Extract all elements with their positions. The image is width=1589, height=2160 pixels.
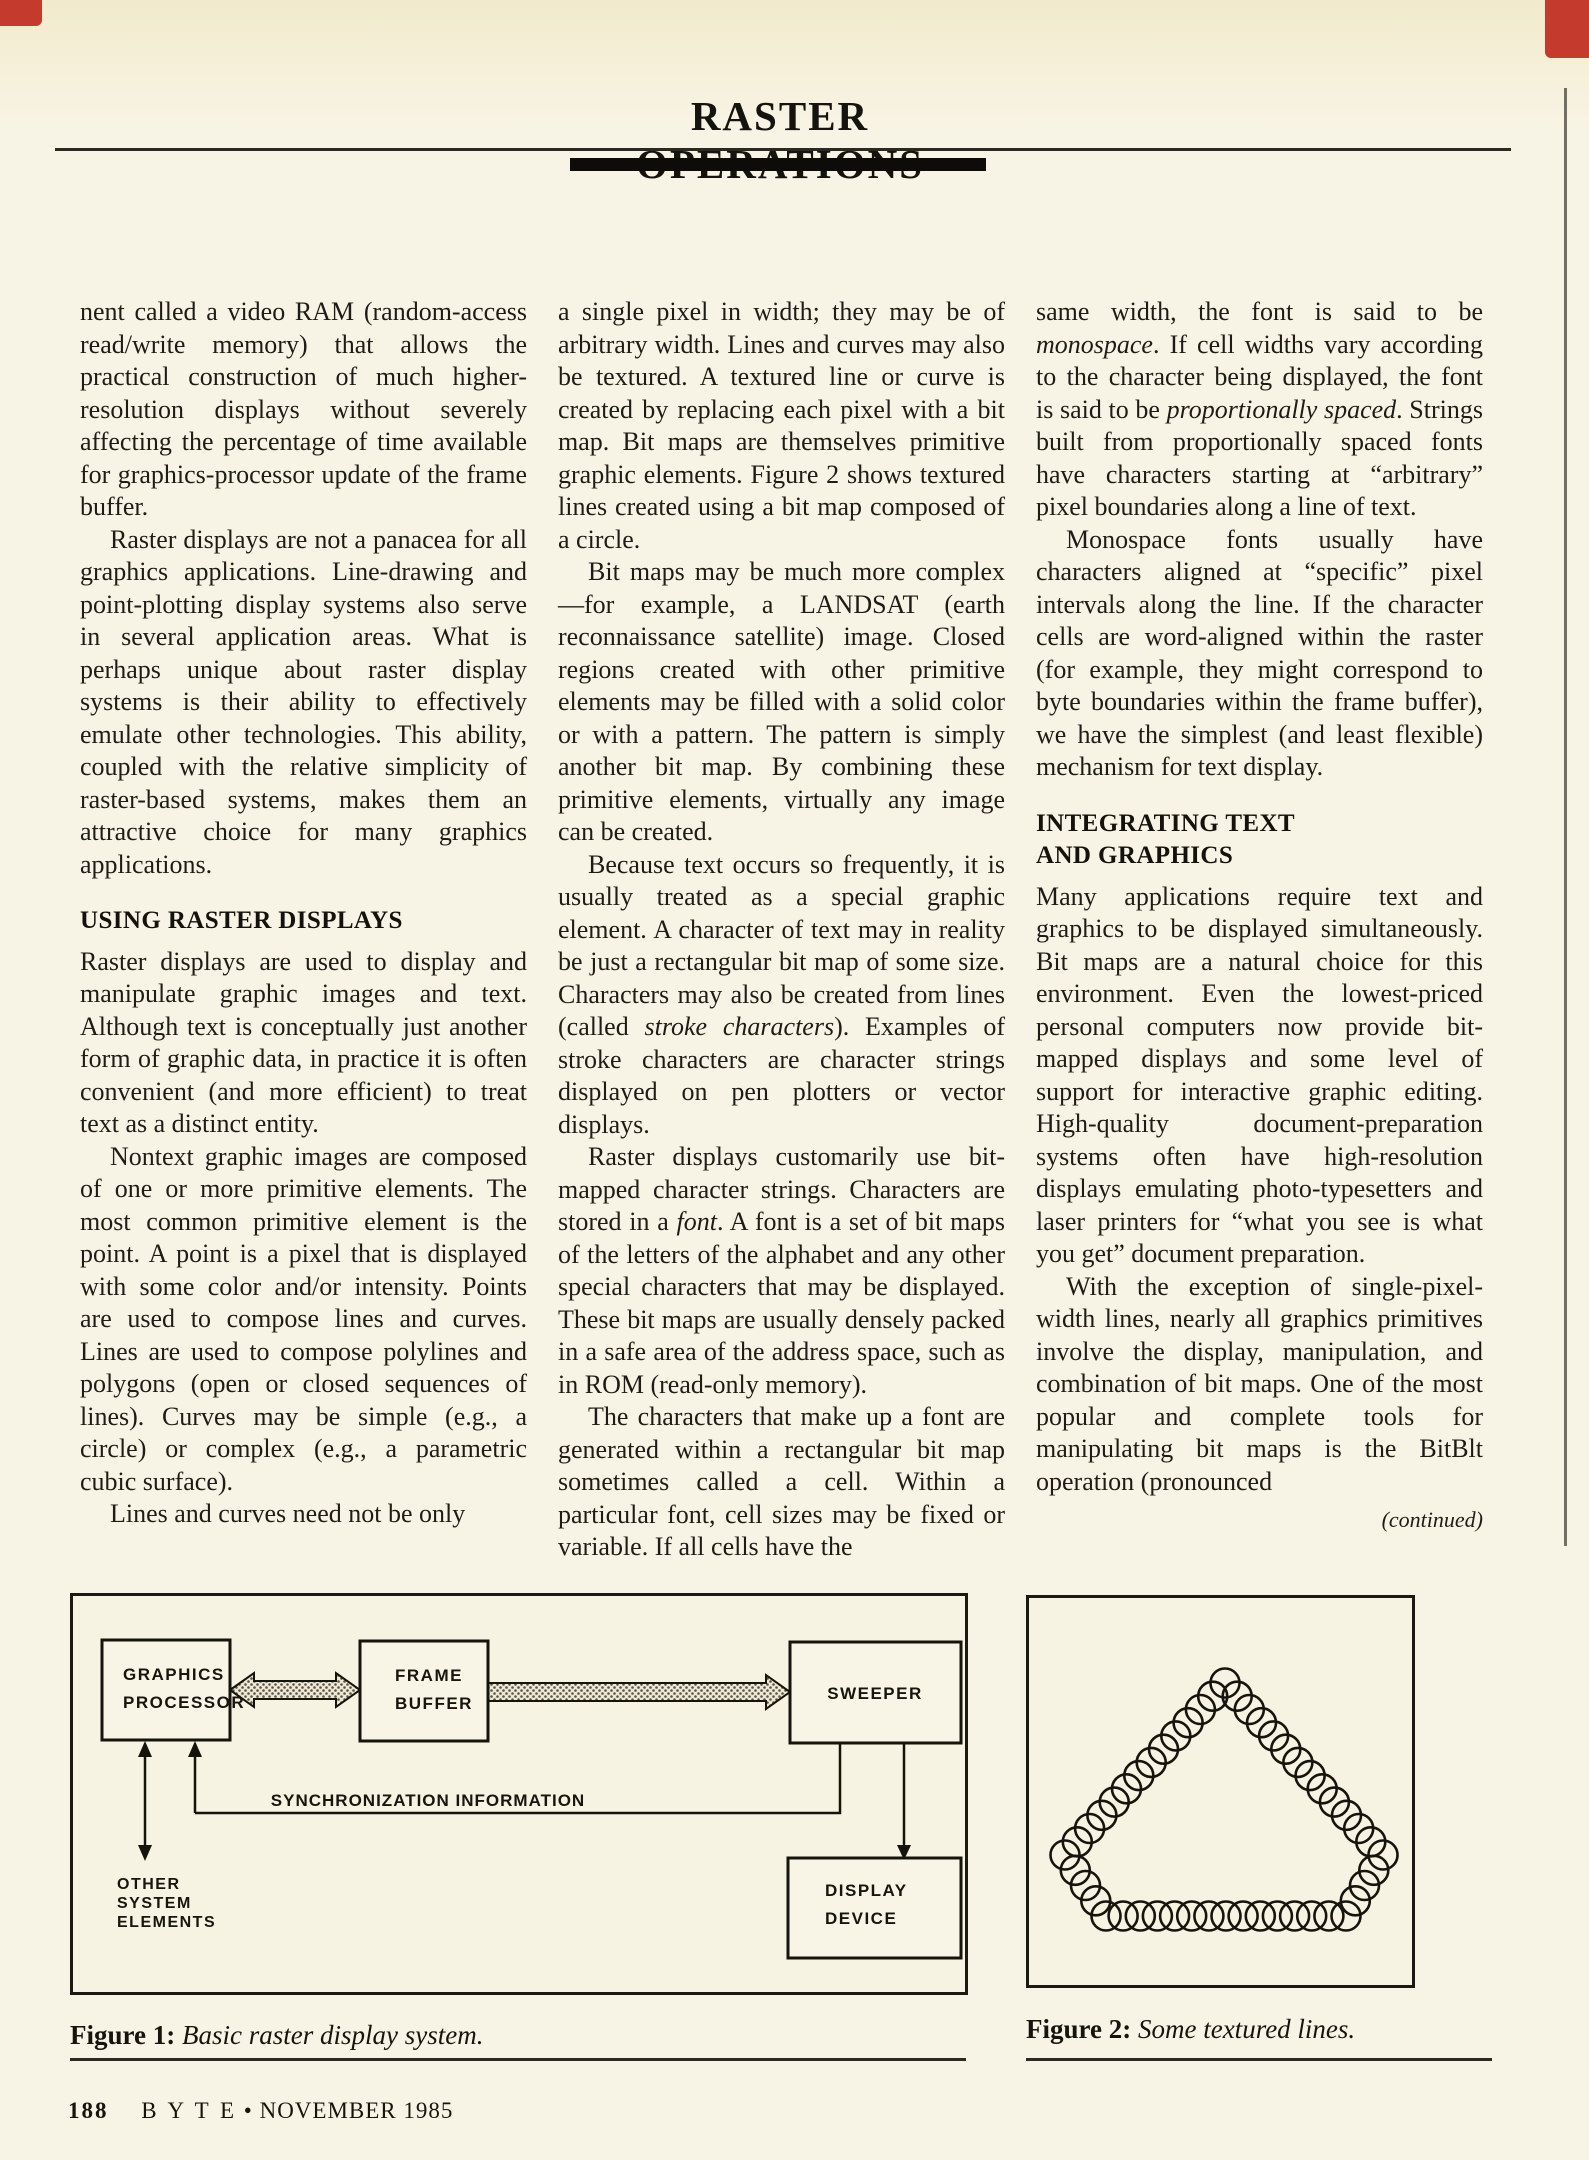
figure1-diagram: GRAPHICS PROCESSOR FRAME BUFFER SWEEPER …: [70, 1593, 968, 1995]
text-run: Many applications require text and graph…: [1036, 882, 1483, 1269]
header-rule: [55, 148, 1511, 151]
text-run: Bit maps may be much more complex—for ex…: [558, 557, 1005, 846]
texture-circle: [1109, 1902, 1138, 1931]
graphics-processor-label-1: GRAPHICS: [123, 1665, 225, 1684]
text-run: Lines and curves need not be only: [110, 1499, 465, 1528]
figure1-caption-rule: [70, 2058, 966, 2061]
texture-circle: [1229, 1902, 1258, 1931]
text-run: nent called a video RAM (random-access r…: [80, 297, 527, 521]
figure1-caption: Figure 1: Basic raster display system.: [70, 2020, 968, 2051]
figure2-textured-lines: [1026, 1595, 1415, 1988]
italic-run: monospace: [1036, 330, 1153, 359]
frame-buffer-label-2: BUFFER: [395, 1694, 473, 1713]
magazine-page: { "header": { "title": "RASTER OPERATION…: [0, 0, 1589, 2160]
texture-circle: [1143, 1902, 1172, 1931]
graphics-processor-box: [102, 1640, 230, 1740]
magazine-name: B Y T E: [141, 2098, 237, 2123]
frame-buffer-label-1: FRAME: [395, 1666, 463, 1685]
text-run: same width, the font is said to be: [1036, 297, 1483, 326]
sweeper-label: SWEEPER: [827, 1684, 923, 1703]
texture-circle: [1280, 1902, 1309, 1931]
page-number: 188: [68, 2098, 109, 2123]
scan-artifact-red-corner-left: [0, 0, 42, 26]
italic-run: font: [677, 1207, 717, 1236]
other-system-elements-label-3: ELEMENTS: [117, 1914, 216, 1931]
texture-circle: [1212, 1902, 1241, 1931]
display-device-label-1: DISPLAY: [825, 1881, 908, 1900]
bus-arrow-gp-fb: [230, 1673, 360, 1707]
scan-artifact-red-corner-right: [1545, 0, 1589, 58]
column-3: same width, the font is said to be monos…: [1036, 296, 1483, 1537]
page-title: RASTER OPERATIONS: [560, 92, 1000, 188]
figure2-caption-rule: [1026, 2058, 1492, 2061]
text-run: a single pixel in width; they may be of …: [558, 297, 1005, 554]
texture-circle: [1297, 1902, 1326, 1931]
paragraph: Nontext graphic images are composed of o…: [80, 1141, 527, 1499]
texture-circle: [1177, 1902, 1206, 1931]
sync-arrowhead-icon: [188, 1741, 202, 1757]
paragraph: Bit maps may be much more complex—for ex…: [558, 556, 1005, 849]
page-edge-line: [1564, 88, 1567, 1546]
figure1-caption-label: Figure 1:: [70, 2020, 175, 2050]
paragraph: The characters that make up a font are g…: [558, 1401, 1005, 1564]
header-thick-bar: [570, 158, 986, 171]
texture-circle: [1160, 1902, 1189, 1931]
bus-arrow-fb-sweeper: [488, 1675, 790, 1709]
text-run: Nontext graphic images are composed of o…: [80, 1142, 527, 1496]
italic-run: proportionally spaced: [1167, 395, 1397, 424]
paragraph: Raster displays are used to display and …: [80, 946, 527, 1141]
continued-marker: (continued): [1036, 1504, 1483, 1537]
figure1-caption-text: Basic raster display system.: [182, 2020, 483, 2050]
italic-run: stroke characters: [645, 1012, 835, 1041]
text-run: With the exception of single-pixel-width…: [1036, 1272, 1483, 1496]
display-device-box: [788, 1858, 961, 1958]
section-heading: INTEGRATING TEXT AND GRAPHICS: [1036, 808, 1483, 873]
figure1-svg: GRAPHICS PROCESSOR FRAME BUFFER SWEEPER …: [73, 1596, 965, 1992]
other-system-elements-label-2: SYSTEM: [117, 1895, 192, 1912]
issue-date: NOVEMBER 1985: [260, 2098, 454, 2123]
frame-buffer-box: [360, 1641, 488, 1741]
text-run: Raster displays are not a panacea for al…: [80, 525, 527, 879]
paragraph: nent called a video RAM (random-access r…: [80, 296, 527, 524]
paragraph: Lines and curves need not be only: [80, 1498, 527, 1531]
paragraph: same width, the font is said to be monos…: [1036, 296, 1483, 524]
column-1: nent called a video RAM (random-access r…: [80, 296, 527, 1531]
other-elements-arrowhead-down-icon: [138, 1845, 152, 1861]
other-system-elements-label-1: OTHER: [117, 1876, 181, 1893]
text-run: The characters that make up a font are g…: [558, 1402, 1005, 1561]
page-footer: 188 B Y T E • NOVEMBER 1985: [68, 2098, 453, 2124]
paragraph: With the exception of single-pixel-width…: [1036, 1271, 1483, 1499]
paragraph: Many applications require text and graph…: [1036, 881, 1483, 1271]
figure2-caption-label: Figure 2:: [1026, 2014, 1131, 2044]
text-run: Raster displays are used to display and …: [80, 947, 527, 1139]
graphics-processor-label-2: PROCESSOR: [123, 1693, 245, 1712]
footer-bullet: •: [244, 2098, 253, 2123]
texture-circle: [1263, 1902, 1292, 1931]
texture-circle: [1126, 1902, 1155, 1931]
figure2-caption-text: Some textured lines.: [1138, 2014, 1355, 2044]
column-2: a single pixel in width; they may be of …: [558, 296, 1005, 1564]
texture-circle: [1314, 1902, 1343, 1931]
texture-circle: [1194, 1902, 1223, 1931]
paragraph: Raster displays customarily use bit-mapp…: [558, 1141, 1005, 1401]
paragraph: a single pixel in width; they may be of …: [558, 296, 1005, 556]
text-run: Monospace fonts usually have characters …: [1036, 525, 1483, 782]
paragraph: Monospace fonts usually have characters …: [1036, 524, 1483, 784]
paragraph: Because text occurs so frequently, it is…: [558, 849, 1005, 1142]
sync-information-label: SYNCHRONIZATION INFORMATION: [271, 1791, 585, 1810]
paragraph: Raster displays are not a panacea for al…: [80, 524, 527, 882]
texture-circle: [1246, 1902, 1275, 1931]
figure2-caption: Figure 2: Some textured lines.: [1026, 2014, 1496, 2045]
figure2-svg: [1029, 1598, 1412, 1985]
display-device-label-2: DEVICE: [825, 1909, 897, 1928]
other-elements-arrowhead-up-icon: [138, 1741, 152, 1757]
section-heading: USING RASTER DISPLAYS: [80, 905, 527, 938]
